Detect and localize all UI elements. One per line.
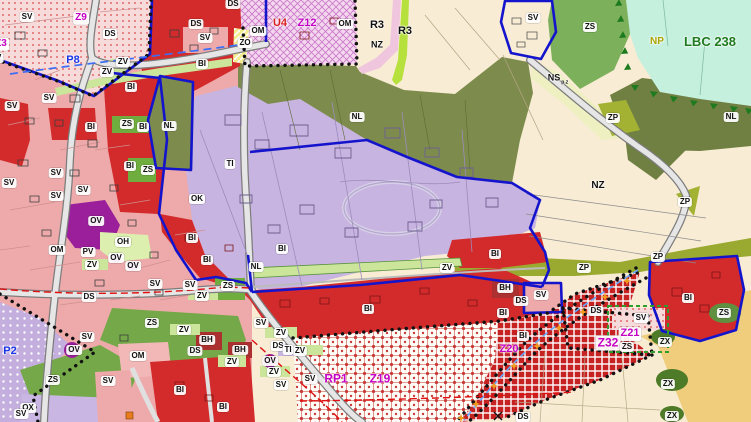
zoning-map[interactable]: SVZ9DSDSDSSVZ3SVP8ZVZVBIOMU4Z12OMZOR3R3N… xyxy=(0,0,751,422)
orange-marker xyxy=(126,412,133,419)
map-canvas xyxy=(0,0,751,422)
